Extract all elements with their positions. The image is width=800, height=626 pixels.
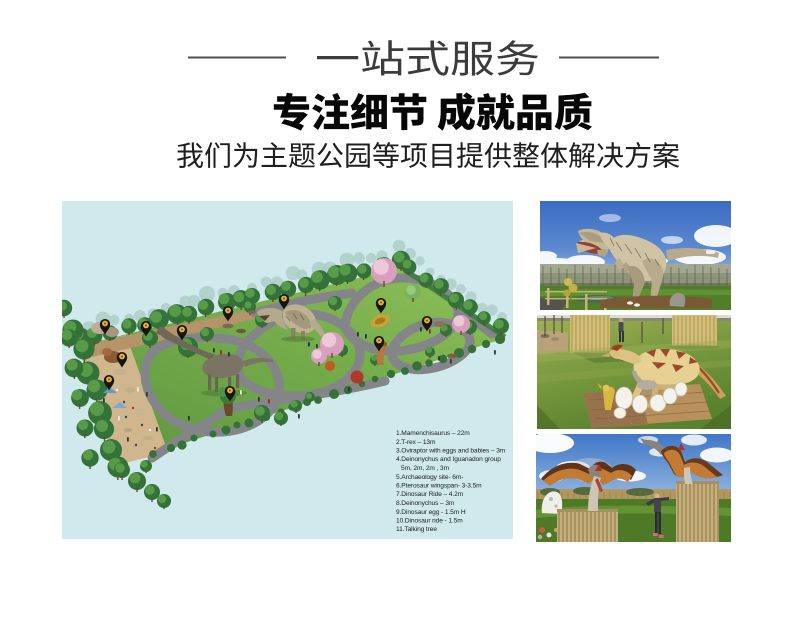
svg-text:2.T-rex – 13m: 2.T-rex – 13m xyxy=(396,439,436,446)
svg-text:9.Dinosaur egg - 1.5m H: 9.Dinosaur egg - 1.5m H xyxy=(396,509,466,516)
svg-text:1.Mamenchisaurus – 22m: 1.Mamenchisaurus – 22m xyxy=(396,430,470,437)
svg-text:3.Oviraptor with eggs and babi: 3.Oviraptor with eggs and babies – 3m xyxy=(396,448,506,455)
svg-text:6.Pterosaur wingspan- 3-3.5m: 6.Pterosaur wingspan- 3-3.5m xyxy=(396,483,482,490)
svg-text:10.Dinosaur ride - 1.5m: 10.Dinosaur ride - 1.5m xyxy=(396,518,463,525)
svg-text:11.Talking tree: 11.Talking tree xyxy=(396,526,437,533)
svg-text:5.Archaeology site- 6m-: 5.Archaeology site- 6m- xyxy=(396,474,463,481)
svg-text:5m, 2m, 2m , 3m: 5m, 2m, 2m , 3m xyxy=(401,465,450,472)
svg-text:4.Deinonychus and Iguanadon gr: 4.Deinonychus and Iguanadon group xyxy=(396,456,501,463)
svg-text:7.Dinosaur Ride – 4.2m: 7.Dinosaur Ride – 4.2m xyxy=(396,491,464,498)
svg-text:8.Deinonychus – 3m: 8.Deinonychus – 3m xyxy=(396,500,455,507)
